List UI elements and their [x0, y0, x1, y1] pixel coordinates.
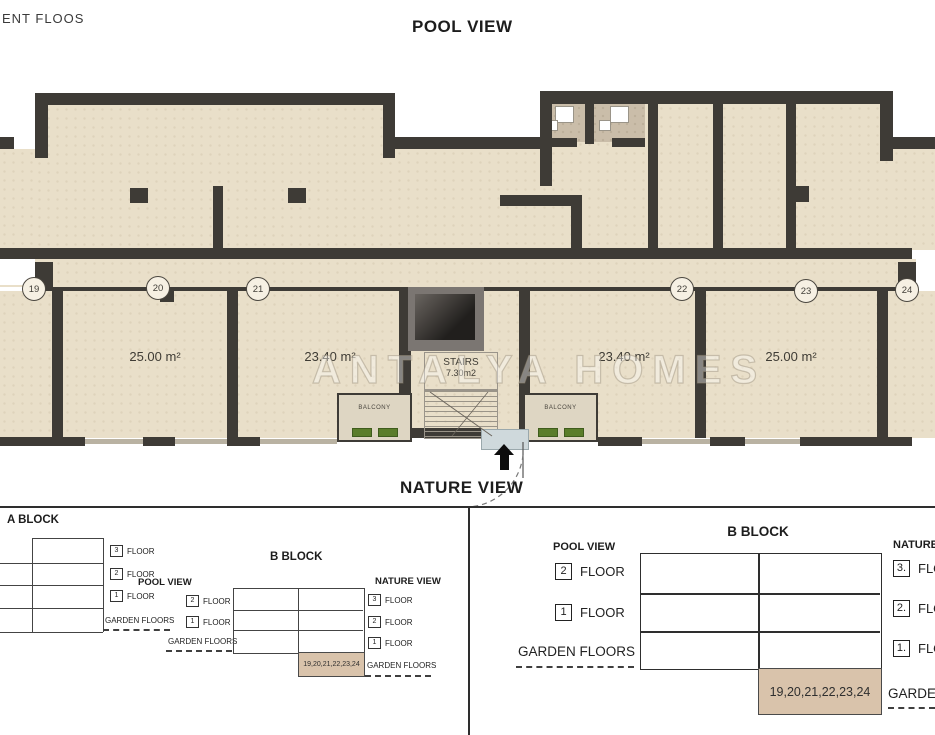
- floor-label: FLOOR: [385, 596, 413, 605]
- pool-view-side-label: POOL VIEW: [138, 577, 192, 588]
- floor-label: FLOOR: [127, 592, 155, 601]
- b-small-pool-garden-label: GARDEN FLOORS: [168, 637, 237, 646]
- unit-number-23: 23: [794, 279, 818, 303]
- nature-view-side-label: NATURE VIEW: [893, 539, 935, 551]
- floor-number-box: 2: [368, 616, 381, 628]
- floor-number-box: 1: [555, 604, 572, 621]
- unit-number-19: 19: [22, 277, 46, 301]
- garden-dashed-line: [365, 675, 431, 677]
- b-small-nature-garden-label: GARDEN FLOORS: [367, 661, 436, 670]
- a-block-title: A BLOCK: [7, 514, 59, 526]
- b-large-pool-floor-2: 2 FLOOR: [555, 563, 625, 580]
- a-block-garden-label: GARDEN FLOORS: [105, 616, 174, 625]
- garden-dashed-line: [103, 629, 170, 631]
- b-small-grid: [233, 588, 365, 654]
- b-small-pool-floor-1: 1 FLOOR: [186, 616, 231, 628]
- nature-view-title: NATURE VIEW: [400, 478, 523, 498]
- garden-dashed-line: [888, 707, 935, 709]
- floor-label: FLOOR: [203, 597, 231, 606]
- floor-number-box: 2.: [893, 600, 910, 617]
- floor-label: FLOOR: [127, 547, 155, 556]
- b-large-nature-floor-2: 2. FLOOR: [893, 600, 935, 617]
- pool-view-side-label: POOL VIEW: [553, 541, 615, 553]
- floor-number-box: 1: [110, 590, 123, 602]
- b-large-nature-floor-3: 3. FLOOR: [893, 560, 935, 577]
- b-small-nature-floor-3: 3 FLOOR: [368, 594, 413, 606]
- floor-number-box: 3: [110, 545, 123, 557]
- floor-label: FLOOR: [203, 618, 231, 627]
- b-large-grid: [640, 553, 882, 670]
- floor-number-box: 2: [110, 568, 123, 580]
- floor-number-box: 3.: [893, 560, 910, 577]
- garden-dashed-line: [166, 650, 232, 652]
- garden-dashed-line: [516, 666, 634, 668]
- floor-label: FLOOR: [385, 618, 413, 627]
- floor-label: FLOOR: [918, 641, 935, 656]
- b-small-nature-floor-2: 2 FLOOR: [368, 616, 413, 628]
- b-small-nature-floor-1: 1 FLOOR: [368, 637, 413, 649]
- unit-number-21: 21: [246, 277, 270, 301]
- floor-label: FLOOR: [385, 639, 413, 648]
- b-block-small-title: B BLOCK: [270, 551, 322, 563]
- floor-number-box: 2: [555, 563, 572, 580]
- room-area-label: 25.00 m²: [765, 349, 816, 364]
- b-small-garden-units-cell: 19,20,21,22,23,24: [298, 652, 365, 677]
- b-large-nature-garden-label: GARDEN FLOORS: [888, 686, 935, 701]
- b-small-pool-floor-2: 2 FLOOR: [186, 595, 231, 607]
- a-block-floor-3: 3 FLOOR: [110, 545, 155, 557]
- floor-label: FLOOR: [918, 601, 935, 616]
- panel-divider-vertical: [468, 506, 470, 735]
- b-large-pool-floor-1: 1 FLOOR: [555, 604, 625, 621]
- unit-number-24: 24: [895, 278, 919, 302]
- nature-view-side-label: NATURE VIEW: [375, 576, 441, 587]
- floor-number-box: 1: [368, 637, 381, 649]
- unit-number-20: 20: [146, 276, 170, 300]
- floor-number-box: 1: [186, 616, 199, 628]
- room-area-label: 25.00 m²: [129, 349, 180, 364]
- b-large-nature-floor-1: 1. FLOOR: [893, 640, 935, 657]
- unit-number-22: 22: [670, 277, 694, 301]
- floor-label: FLOOR: [580, 564, 625, 579]
- watermark: ANTALYA HOMES: [312, 348, 766, 393]
- floor-number-box: 3: [368, 594, 381, 606]
- floor-number-box: 1.: [893, 640, 910, 657]
- floor-number-box: 2: [186, 595, 199, 607]
- floor-plan-sheet: ENT FLOOS POOL VIEW: [0, 0, 935, 735]
- floor-label: FLOOR: [580, 605, 625, 620]
- b-block-large-title: B BLOCK: [700, 524, 816, 539]
- b-large-pool-garden-label: GARDEN FLOORS: [518, 644, 635, 659]
- a-block-floor-1: 1 FLOOR: [110, 590, 155, 602]
- floor-label: FLOOR: [918, 561, 935, 576]
- b-large-garden-units-cell: 19,20,21,22,23,24: [758, 668, 882, 715]
